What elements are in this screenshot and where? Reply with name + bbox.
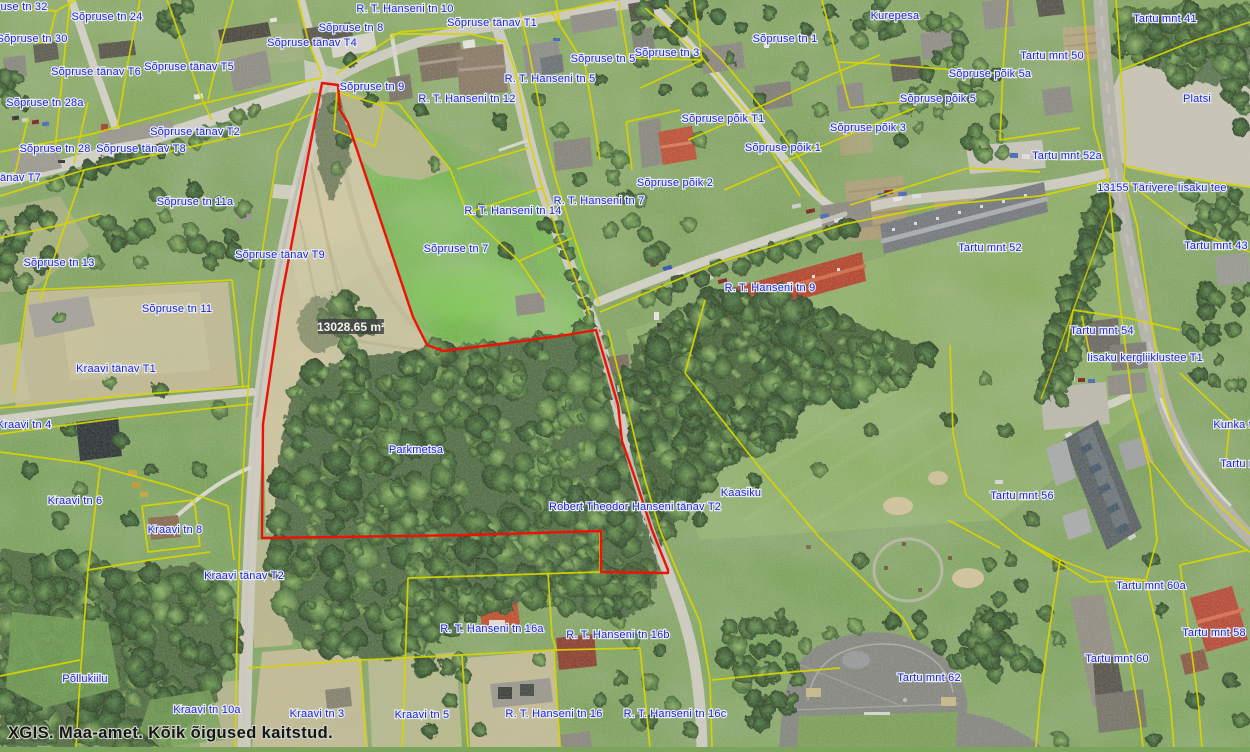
svg-text:Sõpruse tänav T1: Sõpruse tänav T1: [447, 17, 537, 29]
svg-text:Sõpruse tn 7: Sõpruse tn 7: [424, 243, 489, 255]
svg-text:Tartu mnt 54: Tartu mnt 54: [1070, 325, 1134, 337]
svg-text:Tartu mnt 60a: Tartu mnt 60a: [1116, 580, 1187, 592]
svg-text:Tartu mnt 43: Tartu mnt 43: [1184, 240, 1248, 252]
svg-text:Robert Theodor Hanseni tänav T: Robert Theodor Hanseni tänav T2: [549, 501, 721, 513]
svg-text:Parkmetsa: Parkmetsa: [389, 444, 444, 456]
svg-text:R. T. Hanseni tn 14: R. T. Hanseni tn 14: [464, 205, 561, 217]
svg-text:Kunka tänav: Kunka tänav: [1213, 419, 1250, 431]
svg-text:Kaasiku: Kaasiku: [721, 487, 762, 499]
svg-text:Sõpruse põik 5: Sõpruse põik 5: [900, 93, 976, 105]
svg-text:Sõpruse põik 1: Sõpruse põik 1: [745, 142, 821, 154]
svg-text:Sõpruse tänav T6: Sõpruse tänav T6: [51, 66, 141, 78]
svg-text:Sõpruse tn 3: Sõpruse tn 3: [635, 47, 700, 59]
svg-text:Kraavi tänav T2: Kraavi tänav T2: [204, 570, 284, 582]
svg-text:Tartu mnt 50: Tartu mnt 50: [1020, 50, 1084, 62]
svg-text:Sõpruse põik 3: Sõpruse põik 3: [830, 122, 906, 134]
svg-text:R. T. Hanseni tn 16b: R. T. Hanseni tn 16b: [566, 629, 669, 641]
svg-text:Kraavi tn 4: Kraavi tn 4: [0, 419, 51, 431]
svg-text:Sõpruse põik 5a: Sõpruse põik 5a: [949, 68, 1032, 80]
svg-text:Sõpruse tn 28: Sõpruse tn 28: [19, 143, 90, 155]
svg-text:Tartu mnt 60: Tartu mnt 60: [1085, 653, 1149, 665]
svg-text:Kraavi tn 5: Kraavi tn 5: [395, 709, 450, 721]
svg-text:e tänav T7: e tänav T7: [0, 172, 41, 184]
svg-text:Sõpruse tänav T9: Sõpruse tänav T9: [235, 249, 325, 261]
svg-text:Kraavi tn 8: Kraavi tn 8: [148, 524, 203, 536]
svg-text:R. T. Hanseni tn 9: R. T. Hanseni tn 9: [725, 282, 816, 294]
svg-text:Platsi: Platsi: [1183, 93, 1211, 105]
svg-text:R. T. Hanseni tn 12: R. T. Hanseni tn 12: [418, 93, 515, 105]
svg-text:Tartu mnt 58: Tartu mnt 58: [1182, 627, 1246, 639]
svg-text:Kraavi tn 6: Kraavi tn 6: [48, 495, 103, 507]
svg-text:Sõpruse tn 30: Sõpruse tn 30: [0, 33, 68, 45]
svg-text:Sõpruse tn 11: Sõpruse tn 11: [142, 303, 212, 315]
svg-text:Sõpruse tänav T2: Sõpruse tänav T2: [150, 126, 240, 138]
svg-text:R. T. Hanseni tn 16a: R. T. Hanseni tn 16a: [440, 623, 544, 635]
svg-text:Tartu mnt 62: Tartu mnt 62: [897, 672, 961, 684]
svg-text:Sõpruse tänav T4: Sõpruse tänav T4: [267, 37, 357, 49]
svg-text:Kurepesa: Kurepesa: [871, 10, 920, 22]
svg-text:Põllukiilu: Põllukiilu: [62, 673, 107, 685]
svg-text:R. T. Hanseni tn 5: R. T. Hanseni tn 5: [505, 73, 596, 85]
svg-text:Sõpruse tn 13: Sõpruse tn 13: [23, 257, 94, 269]
svg-text:Sõpruse tn 5: Sõpruse tn 5: [571, 53, 636, 65]
svg-text:R. T. Hanseni tn 16c: R. T. Hanseni tn 16c: [624, 708, 727, 720]
svg-text:Sõpruse tn 9: Sõpruse tn 9: [340, 81, 405, 93]
svg-text:Tartu mnt 45: Tartu mnt 45: [1220, 458, 1250, 470]
svg-text:Sõpruse tänav T5: Sõpruse tänav T5: [144, 61, 234, 73]
svg-text:Sõpruse tn 28a: Sõpruse tn 28a: [6, 97, 84, 109]
svg-text:R. T. Hanseni tn 7: R. T. Hanseni tn 7: [554, 195, 645, 207]
svg-text:Tartu mnt 41: Tartu mnt 41: [1133, 13, 1197, 25]
svg-text:Tartu mnt 52a: Tartu mnt 52a: [1032, 150, 1103, 162]
svg-text:Iisaku kergliiklustee T1: Iisaku kergliiklustee T1: [1087, 352, 1203, 364]
svg-text:Kraavi tänav T1: Kraavi tänav T1: [76, 363, 156, 375]
svg-text:XGIS. Maa-amet. Kõik õigused k: XGIS. Maa-amet. Kõik õigused kaitstud.: [8, 724, 333, 742]
svg-text:R. T. Hanseni tn 10: R. T. Hanseni tn 10: [356, 3, 453, 15]
svg-text:Kraavi tn 3: Kraavi tn 3: [290, 708, 345, 720]
svg-text:Sõpruse tn 24: Sõpruse tn 24: [71, 11, 142, 23]
svg-text:Sõpruse tn 8: Sõpruse tn 8: [319, 22, 384, 34]
svg-text:Sõpruse tn 11a: Sõpruse tn 11a: [157, 196, 234, 208]
svg-text:Sõpruse põik 2: Sõpruse põik 2: [637, 177, 713, 189]
svg-text:Sõpruse tn 1: Sõpruse tn 1: [753, 33, 818, 45]
svg-text:13028.65 m²: 13028.65 m²: [317, 320, 385, 334]
svg-text:Sõpruse tn 32: Sõpruse tn 32: [0, 1, 48, 13]
svg-text:Sõpruse põik T1: Sõpruse põik T1: [682, 113, 765, 125]
svg-text:Kraavi tn 10a: Kraavi tn 10a: [173, 704, 241, 716]
svg-text:13155 Tärivere-Iisaku tee: 13155 Tärivere-Iisaku tee: [1097, 182, 1227, 194]
svg-text:Tartu mnt 56: Tartu mnt 56: [990, 490, 1054, 502]
svg-text:R. T. Hanseni tn 16: R. T. Hanseni tn 16: [505, 708, 602, 720]
svg-text:Tartu mnt 52: Tartu mnt 52: [958, 242, 1022, 254]
svg-text:Sõpruse tänav T8: Sõpruse tänav T8: [96, 143, 186, 155]
